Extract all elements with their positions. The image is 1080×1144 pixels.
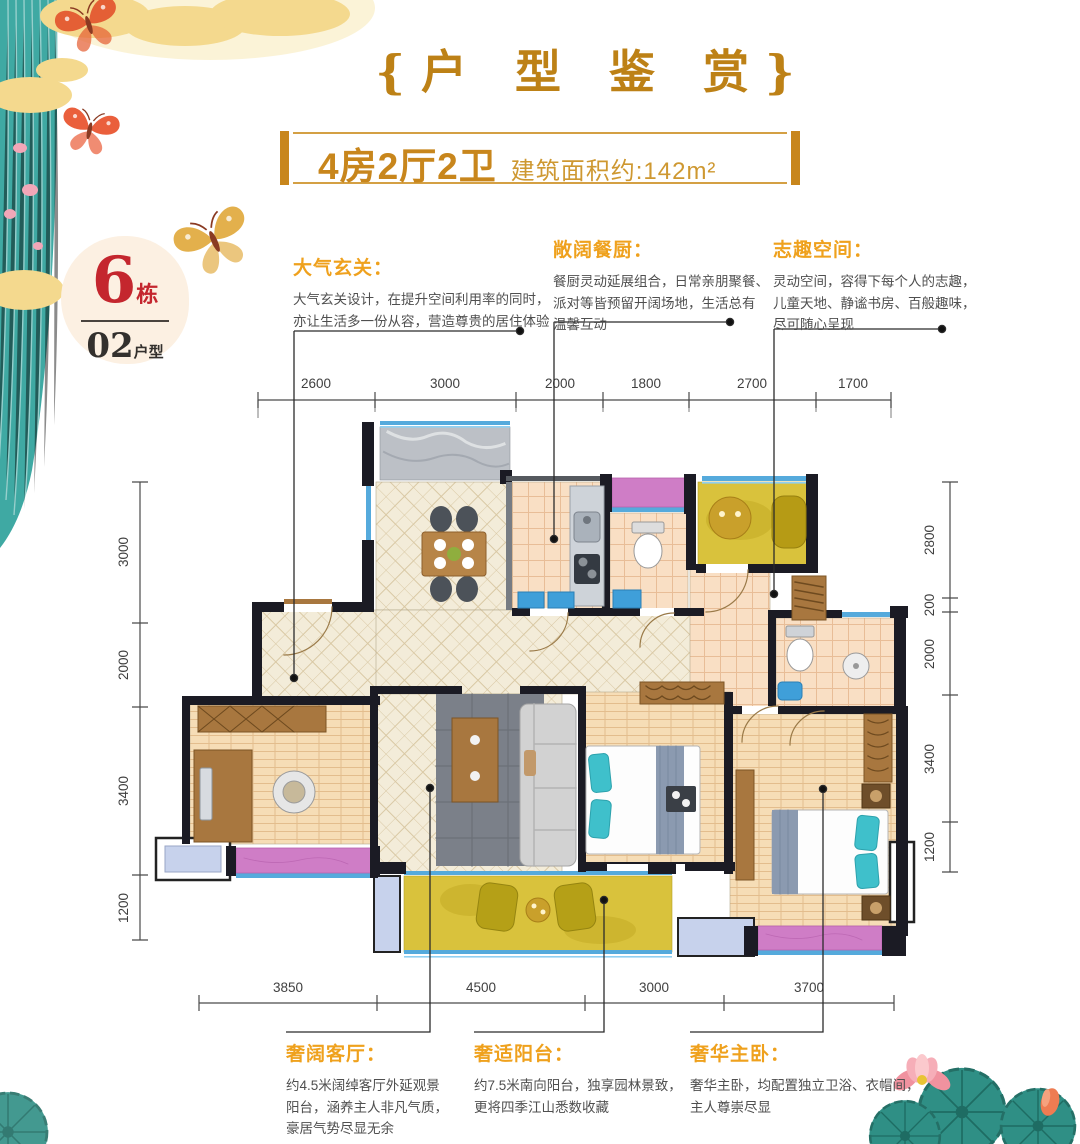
dim-top-3: 2000 [545,376,575,391]
living-room [436,694,576,866]
floor-plan [156,421,914,958]
dim-top-5: 2700 [737,376,767,391]
built-area: 建筑面积约:142m² [511,158,717,185]
annotation-title: 大气玄关： [293,254,550,285]
dim-right-2: 200 [922,594,937,617]
annotation-title: 敞阔餐厨： [553,236,769,267]
building-number: 6 [92,243,137,318]
dim-right-3: 2000 [922,639,937,669]
dim-right-4: 3400 [922,744,937,774]
annotation-living-room: 奢阔客厅： 约4.5米阔绰客厅外延观景 阳台，涵养主人非凡气质， 豪居气势尽显无… [286,1040,448,1140]
building-unit-badge: 6栋 02户型 [61,236,189,364]
dim-top-1: 2600 [301,376,331,391]
annotation-master-bedroom: 奢华主卧： 奢华主卧，均配置独立卫浴、衣帽间， 主人尊崇尽显 [690,1040,920,1118]
unit-number: 02 [86,326,133,366]
dim-right-1: 2800 [922,525,937,555]
building-unit-suffix: 栋 [136,282,158,307]
badge-divider [81,320,169,322]
dim-top-2: 3000 [430,376,460,391]
page-title: {户 型 鉴 赏} [106,36,1080,102]
dim-bottom-2: 4500 [466,980,496,995]
dim-left-3: 3400 [116,776,131,806]
dim-right-5: 1200 [922,832,937,862]
dim-bottom-1: 3850 [273,980,303,995]
banner-left-bar [280,131,289,185]
annotation-title: 志趣空间： [773,236,976,267]
dim-left-1: 3000 [116,537,131,567]
unit-label: 户型 [134,344,164,361]
lotus-leaf-icon [0,1092,48,1144]
annotation-flex-space: 志趣空间： 灵动空间，容得下每个人的志趣， 儿童天地、静谧书房、百般趣味， 尽可… [773,236,976,336]
floorplan-poster: 2600 3000 2000 1800 2700 1700 3850 4500 … [0,0,1080,1144]
annotation-title: 奢阔客厅： [286,1040,448,1071]
layout-banner: 4房2厅2卫建筑面积约:142m² [280,131,800,185]
dim-top-6: 1700 [838,376,868,391]
annotation-kitchen-dining: 敞阔餐厨： 餐厨灵动延展组合，日常亲朋聚餐、 派对等皆预留开阔场地，生活总有 温… [553,236,769,336]
dim-left-4: 1200 [116,893,131,923]
banner-top-rule [293,132,787,134]
annotation-balcony: 奢适阳台： 约7.5米南向阳台，独享园林景致， 更将四季江山悉数收藏 [474,1040,682,1118]
banner-right-bar [791,131,800,185]
annotation-entrance: 大气玄关： 大气玄关设计，在提升空间利用率的同时， 亦让生活多一份从容，营造尊贵… [293,254,550,332]
dim-top-4: 1800 [631,376,661,391]
hall-cabinet [792,576,826,620]
dim-bottom-4: 3700 [794,980,824,995]
dim-left-2: 2000 [116,650,131,680]
dim-bottom-3: 3000 [639,980,669,995]
layout-spec: 4房2厅2卫 [318,146,497,187]
annotation-title: 奢华主卧： [690,1040,920,1071]
annotation-title: 奢适阳台： [474,1040,682,1071]
